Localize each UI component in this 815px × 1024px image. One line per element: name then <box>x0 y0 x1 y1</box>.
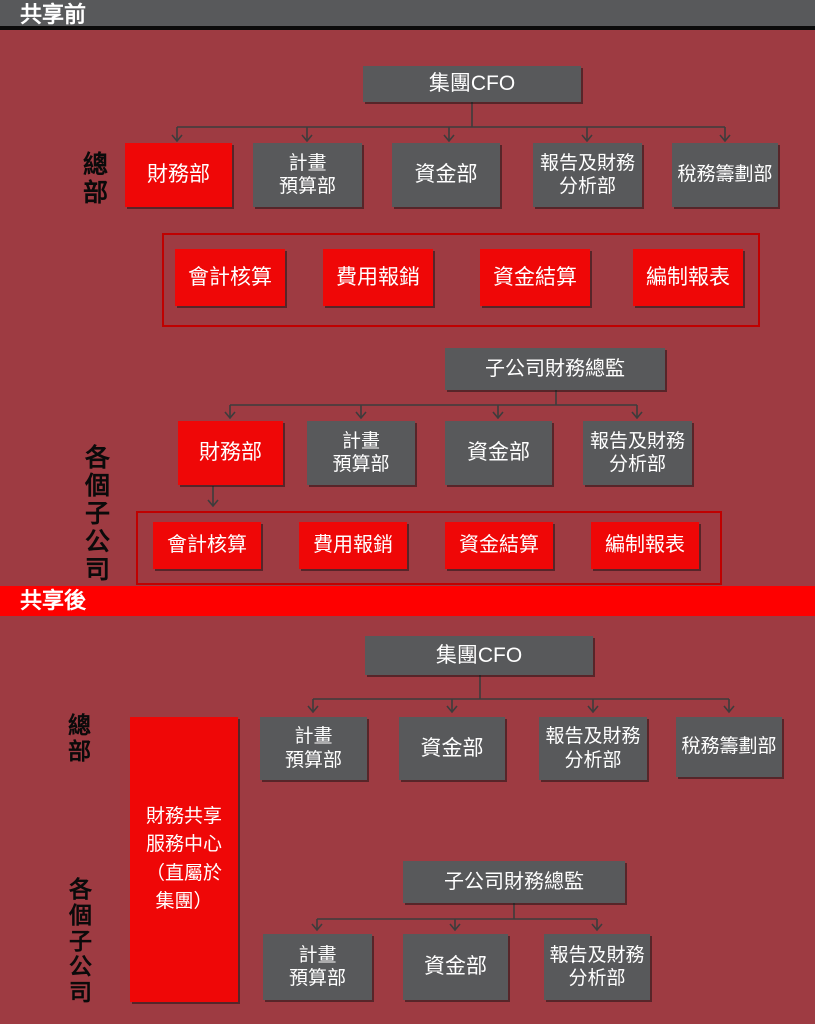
node-finance-shared-service-center: 財務共享 服務中心 （直屬於 集團） <box>130 717 238 1002</box>
side-label-headquarters-before: 總部 <box>82 151 109 207</box>
node-subsidiary-finance-director-before: 子公司財務總監 <box>445 348 665 390</box>
node-plan-budget-dept-hq-after: 計畫 預算部 <box>260 717 367 780</box>
node-group-cfo-before: 集團CFO <box>363 66 581 102</box>
node-subsidiary-finance-director-after: 子公司財務總監 <box>403 861 625 903</box>
node-plan-budget-dept-sub-after: 計畫 預算部 <box>263 934 372 1000</box>
node-plan-budget-dept-sub-before: 計畫 預算部 <box>307 421 415 485</box>
node-fund-settlement-sub-before: 資金結算 <box>445 522 553 569</box>
node-plan-budget-dept-hq-before: 計畫 預算部 <box>253 143 362 207</box>
node-treasury-dept-hq-before: 資金部 <box>392 143 500 207</box>
node-fund-settlement-hq-before: 資金結算 <box>480 249 590 306</box>
node-finance-dept-sub-before: 財務部 <box>178 421 283 485</box>
side-label-subsidiaries-after: 各個子公司 <box>68 877 93 1006</box>
node-expense-reimbursement-hq-before: 費用報銷 <box>323 249 433 306</box>
org-chart-slide: 共享前 共享後 總部 集團CFO 財務部 計畫 預算部 資金部 報告及財務 分析… <box>0 0 815 1024</box>
node-tax-planning-dept-hq-before: 稅務籌劃部 <box>672 143 778 207</box>
node-report-preparation-sub-before: 編制報表 <box>591 522 699 569</box>
node-reporting-analysis-dept-hq-after: 報告及財務 分析部 <box>539 717 647 780</box>
node-tax-planning-dept-hq-after: 稅務籌劃部 <box>676 717 782 777</box>
node-treasury-dept-sub-after: 資金部 <box>403 934 508 1000</box>
node-reporting-analysis-dept-sub-after: 報告及財務 分析部 <box>544 934 650 1000</box>
node-accounting-hq-before: 會計核算 <box>175 249 285 306</box>
node-treasury-dept-sub-before: 資金部 <box>445 421 552 485</box>
node-reporting-analysis-dept-sub-before: 報告及財務 分析部 <box>583 421 692 485</box>
node-accounting-sub-before: 會計核算 <box>153 522 261 569</box>
node-report-preparation-hq-before: 編制報表 <box>633 249 743 306</box>
node-reporting-analysis-dept-hq-before: 報告及財務 分析部 <box>533 143 642 207</box>
side-label-headquarters-after: 總部 <box>67 713 92 765</box>
node-group-cfo-after: 集團CFO <box>365 636 593 675</box>
node-expense-reimbursement-sub-before: 費用報銷 <box>299 522 407 569</box>
node-finance-dept-hq-before: 財務部 <box>125 143 232 207</box>
node-treasury-dept-hq-after: 資金部 <box>399 717 505 780</box>
side-label-subsidiaries-before: 各個子公司 <box>84 444 111 584</box>
